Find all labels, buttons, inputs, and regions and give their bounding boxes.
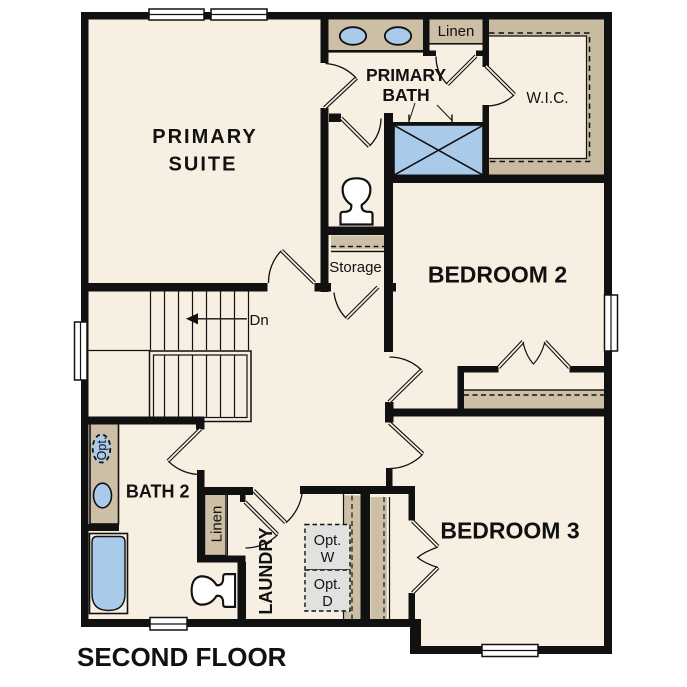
svg-text:D: D [322, 594, 332, 610]
svg-text:Storage: Storage [329, 259, 382, 276]
svg-text:SECOND FLOOR: SECOND FLOOR [77, 642, 287, 672]
svg-text:Linen: Linen [209, 506, 226, 543]
svg-text:Opt.: Opt. [314, 577, 341, 593]
svg-text:Dn: Dn [250, 312, 269, 329]
svg-text:BATH: BATH [382, 85, 429, 105]
svg-text:LAUNDRY: LAUNDRY [256, 527, 276, 614]
svg-text:BEDROOM 2: BEDROOM 2 [428, 262, 567, 288]
svg-text:BEDROOM 3: BEDROOM 3 [440, 518, 579, 544]
svg-text:W.I.C.: W.I.C. [526, 90, 568, 107]
svg-text:PRIMARY: PRIMARY [152, 126, 257, 148]
svg-text:BATH 2: BATH 2 [126, 482, 190, 502]
svg-text:Opt.: Opt. [95, 437, 109, 461]
svg-text:Opt.: Opt. [314, 533, 341, 549]
svg-text:Linen: Linen [438, 23, 475, 40]
svg-text:SUITE: SUITE [169, 154, 238, 176]
svg-text:W: W [321, 550, 335, 566]
svg-text:PRIMARY: PRIMARY [366, 65, 446, 85]
